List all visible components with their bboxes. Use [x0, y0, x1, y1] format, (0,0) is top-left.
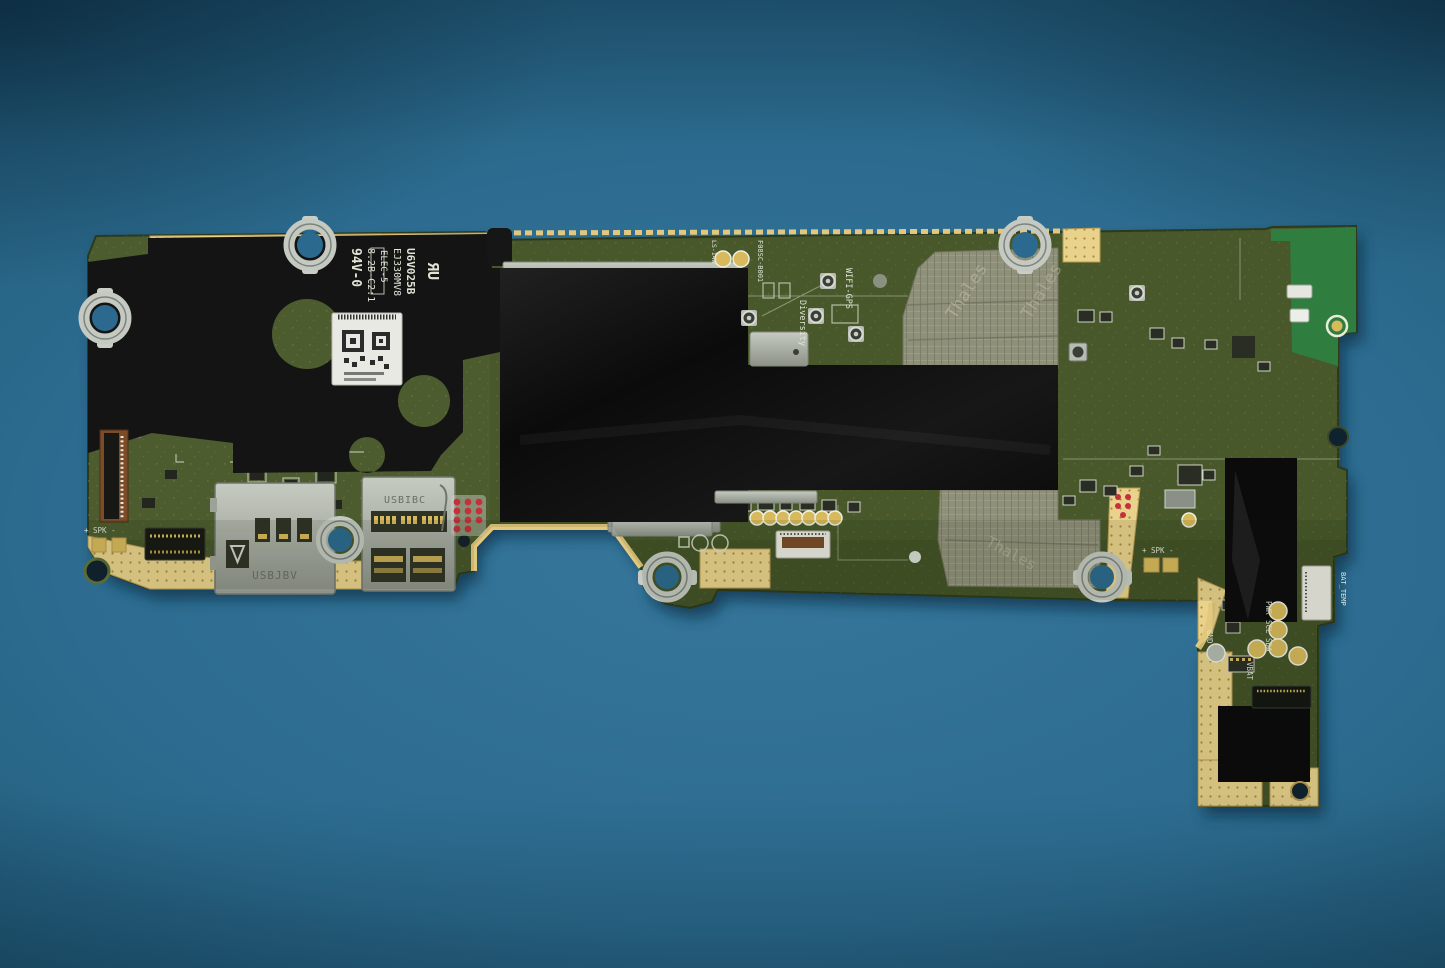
- marking-flammability: 94V-0: [348, 248, 363, 287]
- marking-edge-code: F08SC-B001: [756, 240, 764, 282]
- marking-pad-pair: LS-14W: [710, 240, 718, 264]
- marking-wifi-gps: WIFI-GPS: [843, 268, 853, 309]
- fabric-shield-tape-upper: Thales Thales: [903, 248, 1067, 372]
- ul-recognized-mark: ЯU: [424, 262, 442, 280]
- marking-elec-code: ELEC-5: [378, 250, 388, 283]
- motherboard-illustration: 100: [0, 0, 1445, 968]
- marking-model-code: EJ330MV8: [391, 248, 402, 296]
- qr-label: [332, 313, 402, 385]
- lcd-fpc-connector: [100, 430, 128, 522]
- black-edge-bumper: [487, 228, 512, 266]
- metal-strip: [715, 491, 817, 503]
- sim-slot-label: USBIBC: [384, 495, 426, 506]
- marking-diversity: Diversity: [797, 300, 807, 346]
- marking-lot-code: U6V025B: [404, 248, 417, 295]
- tp-label-bat-temp: BAT_TEMP: [1339, 572, 1347, 606]
- photo-stage: 100: [0, 0, 1445, 968]
